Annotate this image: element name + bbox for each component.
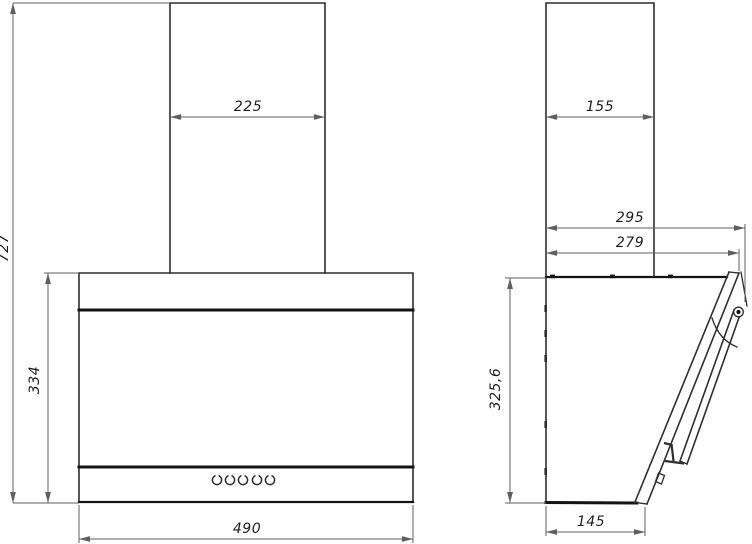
hood-dimension-drawing: 727 334 225 490 155 295	[0, 0, 752, 544]
dim-label-325-6: 325,6	[488, 368, 504, 411]
front-chimney-outline	[170, 3, 325, 273]
side-glass-panel-closed	[635, 272, 739, 504]
dim-front-body-width: 490	[79, 505, 413, 543]
control-button	[238, 474, 247, 485]
control-button	[252, 474, 261, 485]
dim-label-295: 295	[616, 210, 644, 226]
control-button	[225, 474, 234, 485]
dim-label-490: 490	[233, 521, 261, 537]
latch-tab	[656, 473, 665, 484]
dim-label-145: 145	[577, 514, 605, 530]
dim-side-chimney-depth: 155	[546, 99, 654, 117]
side-glass-panel-open	[680, 310, 741, 464]
dim-label-155: 155	[586, 99, 614, 115]
dim-side-upper-depth: 279	[546, 235, 739, 271]
dim-front-body-height: 334	[27, 273, 79, 503]
dim-label-225: 225	[234, 99, 262, 115]
dim-label-334: 334	[27, 366, 43, 394]
dim-side-overall-depth: 295	[546, 210, 745, 302]
dim-label-727: 727	[0, 234, 12, 262]
control-buttons-row	[212, 474, 274, 485]
side-body-bottom-edge	[546, 503, 637, 504]
front-view	[79, 3, 413, 502]
control-button	[212, 474, 221, 485]
dim-front-chimney-width: 225	[170, 99, 325, 117]
dim-label-279: 279	[616, 235, 644, 251]
control-button	[265, 474, 274, 485]
hinge-pivot	[734, 307, 744, 317]
dim-side-body-height: 325,6	[488, 278, 546, 503]
dim-front-overall-height: 727	[0, 3, 170, 503]
glass-swing-edge-line	[741, 272, 747, 306]
dim-side-bottom-depth: 145	[546, 506, 645, 536]
technical-drawing-canvas: 727 334 225 490 155 295	[0, 0, 752, 544]
